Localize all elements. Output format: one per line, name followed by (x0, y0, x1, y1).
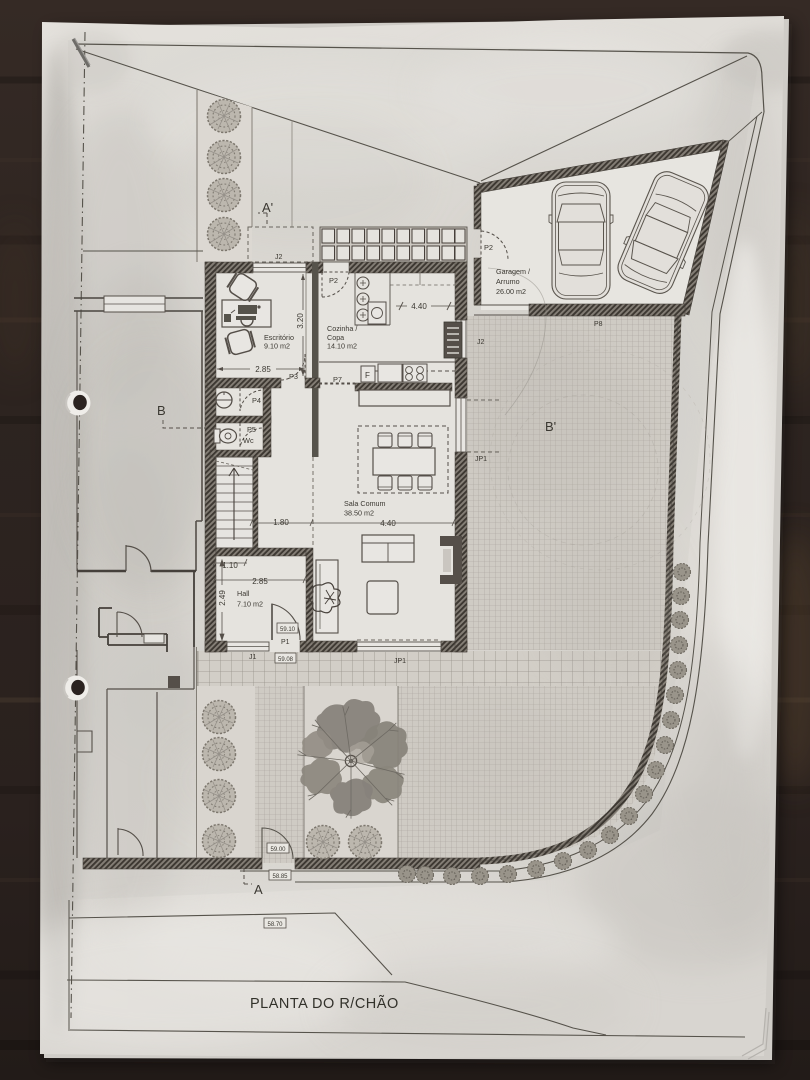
svg-text:38.50 m2: 38.50 m2 (344, 509, 374, 518)
svg-text:J2: J2 (275, 254, 283, 261)
svg-text:P2: P2 (329, 276, 338, 285)
svg-text:J2: J2 (477, 339, 485, 346)
svg-text:B: B (157, 403, 166, 418)
svg-text:JP1: JP1 (475, 456, 487, 463)
svg-text:P5: P5 (247, 425, 256, 434)
svg-text:26.00 m2: 26.00 m2 (496, 287, 526, 296)
svg-text:JP1: JP1 (394, 658, 406, 665)
svg-text:58.85: 58.85 (272, 874, 288, 880)
svg-text:3.20: 3.20 (296, 313, 305, 329)
svg-text:Wc: Wc (243, 436, 254, 445)
svg-text:58.70: 58.70 (267, 922, 283, 928)
svg-text:59.10: 59.10 (280, 627, 296, 633)
svg-text:J1: J1 (249, 654, 257, 661)
svg-text:A: A (254, 882, 263, 897)
svg-text:P1: P1 (281, 639, 290, 646)
svg-text:2.85: 2.85 (252, 577, 268, 586)
svg-text:Cozinha /: Cozinha / (327, 324, 357, 333)
svg-text:Garagem /: Garagem / (496, 267, 530, 276)
svg-text:1.10: 1.10 (222, 561, 238, 570)
svg-text:14.10 m2: 14.10 m2 (327, 342, 357, 351)
svg-text:PLANTA DO R/CHÃO: PLANTA DO R/CHÃO (250, 995, 399, 1012)
svg-text:9.10 m2: 9.10 m2 (264, 342, 290, 351)
svg-text:P4: P4 (252, 396, 261, 405)
svg-text:B': B' (545, 419, 556, 434)
svg-text:P3: P3 (289, 372, 298, 381)
svg-text:Hall: Hall (237, 589, 250, 598)
svg-text:2.85: 2.85 (255, 365, 271, 374)
svg-text:A': A' (262, 200, 273, 215)
svg-text:P2: P2 (484, 243, 493, 252)
svg-text:P7: P7 (333, 375, 342, 384)
svg-text:P8: P8 (594, 321, 603, 328)
svg-text:59.00: 59.00 (270, 847, 286, 853)
svg-text:Arrumo: Arrumo (496, 277, 520, 286)
svg-text:59.08: 59.08 (278, 657, 294, 663)
svg-text:1.80: 1.80 (273, 518, 289, 527)
svg-text:F: F (365, 371, 370, 380)
svg-text:4.40: 4.40 (380, 519, 396, 528)
svg-text:Sala Comum: Sala Comum (344, 499, 386, 508)
svg-text:7.10 m2: 7.10 m2 (237, 600, 263, 609)
svg-text:4.40: 4.40 (411, 302, 427, 311)
svg-text:2.49: 2.49 (218, 590, 227, 606)
